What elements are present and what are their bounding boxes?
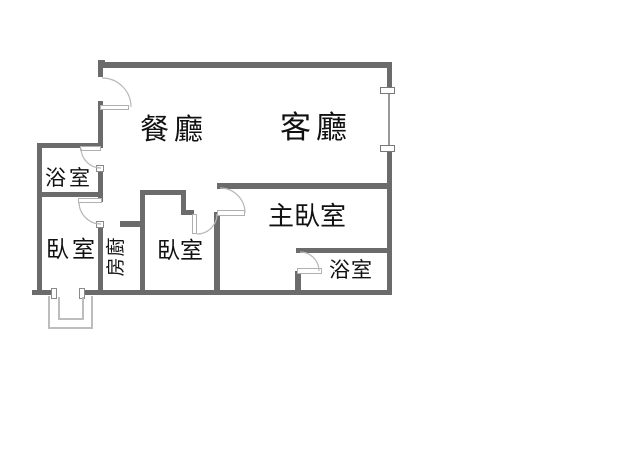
wall-bedroom2-right-post	[214, 212, 220, 295]
floorplan-canvas: 餐廳 客廳 主臥室 臥室 臥室 浴室 浴室 廚 房	[0, 0, 638, 460]
door-jamb-bedroom1	[96, 221, 104, 228]
entry-porch-inner	[58, 297, 84, 320]
room-label-kitchen: 廚 房	[106, 237, 126, 277]
room-label-bathroom-upper-left: 浴室	[45, 167, 93, 190]
room-label-dining: 餐廳	[140, 114, 208, 145]
door-arc-entry	[102, 78, 131, 107]
door-leaf-master	[217, 210, 245, 216]
window-glass-line	[388, 94, 390, 145]
door-leaf-bathroom2	[297, 268, 322, 274]
door-jamb-bathroom1	[96, 165, 104, 172]
room-label-living: 客廳	[280, 112, 352, 145]
wall-top-exterior	[98, 62, 392, 68]
wall-bedroom1-right	[98, 227, 103, 295]
room-label-master-bedroom: 主臥室	[268, 203, 346, 231]
kitchen-char-2: 房	[106, 257, 126, 277]
wall-bottom-main	[84, 290, 392, 295]
window-sill-upper	[380, 87, 395, 94]
wall-entry-lower	[98, 111, 103, 147]
door-leaf-entry	[100, 105, 129, 110]
wall-right-lower	[387, 151, 392, 295]
wall-bathroom2-stub	[295, 271, 301, 295]
wall-right-upper	[387, 62, 392, 88]
wall-bathroom1-bottom	[37, 192, 103, 197]
room-label-bathroom-lower-right: 浴室	[329, 259, 373, 282]
room-label-bedroom-left: 臥室	[46, 238, 98, 263]
wall-bottom-left	[32, 290, 53, 295]
window-sill-lower	[380, 145, 395, 152]
wall-left-exterior	[37, 143, 42, 295]
door-leaf-bathroom1	[80, 146, 101, 151]
door-leaf-bedroom1	[78, 198, 102, 203]
wall-bathroom2-top	[296, 248, 392, 253]
wall-bedroom2-top	[140, 190, 186, 195]
wall-master-top	[217, 183, 392, 189]
wall-kitchen-stub	[120, 221, 142, 227]
door-leaf-bedroom2	[192, 214, 197, 234]
wall-entry-stub	[98, 62, 103, 77]
room-label-bedroom-middle: 臥室	[157, 239, 203, 264]
wall-bedroom2-left	[140, 190, 145, 295]
kitchen-char-1: 廚	[106, 237, 126, 257]
